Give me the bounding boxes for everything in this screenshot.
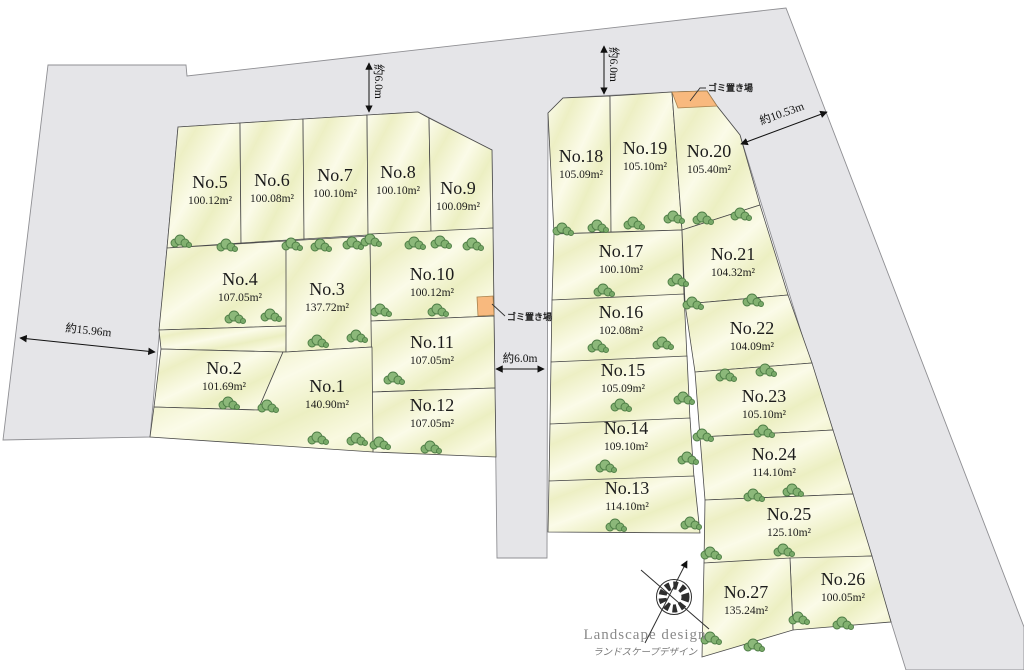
site-plan: ゴミ置き場 ゴミ置き場 No.1 140.90m² No.2 101.69m² … — [0, 0, 1024, 670]
lot-number-20: No.20 — [687, 141, 732, 161]
garbage-label-center: ゴミ置き場 — [507, 311, 552, 322]
garbage-label-north: ゴミ置き場 — [708, 82, 753, 93]
lot-area-26: 100.05m² — [821, 592, 866, 604]
lot-area-1: 140.90m² — [305, 399, 350, 411]
lot-number-1: No.1 — [309, 376, 345, 396]
lot-area-8: 100.10m² — [376, 185, 421, 197]
lot-area-9: 100.09m² — [436, 201, 481, 213]
lot-area-17: 100.10m² — [599, 264, 644, 276]
lot-number-11: No.11 — [410, 332, 454, 352]
lot-area-21: 104.32m² — [711, 267, 756, 279]
branding-en: Landscape design — [583, 627, 706, 643]
lot-area-25: 125.10m² — [767, 527, 812, 539]
lot-number-5: No.5 — [192, 172, 228, 192]
lot-number-25: No.25 — [767, 504, 812, 524]
lot-area-10: 100.12m² — [410, 287, 455, 299]
lot-number-17: No.17 — [599, 241, 644, 261]
lot-area-18: 105.09m² — [559, 169, 604, 181]
lot-area-11: 107.05m² — [410, 355, 455, 367]
lot-number-24: No.24 — [752, 444, 797, 464]
lot-area-24: 114.10m² — [752, 467, 796, 479]
lot-number-23: No.23 — [742, 386, 787, 406]
lot-area-7: 100.10m² — [313, 188, 358, 200]
lot-number-18: No.18 — [559, 146, 604, 166]
lot-number-6: No.6 — [254, 170, 290, 190]
lot-number-26: No.26 — [821, 569, 866, 589]
lot-number-22: No.22 — [730, 318, 775, 338]
lot-number-10: No.10 — [410, 264, 455, 284]
lot-polygon-24 — [700, 430, 853, 500]
lot-number-12: No.12 — [410, 395, 455, 415]
lot-area-14: 109.10m² — [604, 441, 649, 453]
lot-area-3: 137.72m² — [305, 302, 350, 314]
dimension-label-center-road: 約6.0m — [503, 351, 538, 365]
lot-number-9: No.9 — [440, 178, 476, 198]
lot-area-5: 100.12m² — [188, 195, 233, 207]
lot-area-15: 105.09m² — [601, 383, 646, 395]
site-plan-canvas: ゴミ置き場 ゴミ置き場 No.1 140.90m² No.2 101.69m² … — [0, 0, 1024, 670]
branding-ja: ランドスケープデザイン — [593, 646, 697, 658]
lot-area-23: 105.10m² — [742, 409, 787, 421]
lot-area-27: 135.24m² — [724, 605, 769, 617]
lot-area-13: 114.10m² — [605, 501, 649, 513]
lot-number-8: No.8 — [380, 162, 416, 182]
lot-number-3: No.3 — [309, 279, 345, 299]
lot-area-20: 105.40m² — [687, 164, 732, 176]
lot-area-2: 101.69m² — [202, 381, 247, 393]
dimension-label-top-road-right: 約6.0m — [607, 47, 621, 82]
lot-area-4: 107.05m² — [218, 292, 263, 304]
lot-number-15: No.15 — [601, 360, 646, 380]
lot-number-14: No.14 — [604, 418, 649, 438]
lot-number-7: No.7 — [317, 165, 353, 185]
lot-area-12: 107.05m² — [410, 418, 455, 430]
lot-number-16: No.16 — [599, 302, 644, 322]
lot-number-4: No.4 — [222, 269, 258, 289]
lot-area-16: 102.08m² — [599, 325, 644, 337]
lot-number-27: No.27 — [724, 582, 769, 602]
lot-number-2: No.2 — [206, 358, 242, 378]
garbage-area-center — [477, 296, 494, 316]
lot-area-22: 104.09m² — [730, 341, 775, 353]
dimension-label-top-road-left: 約6.0m — [372, 64, 386, 99]
lot-area-19: 105.10m² — [623, 161, 668, 173]
lot-area-6: 100.08m² — [250, 193, 295, 205]
lot-number-19: No.19 — [623, 138, 668, 158]
lot-number-13: No.13 — [605, 478, 650, 498]
lot-strip — [159, 326, 287, 352]
lot-number-21: No.21 — [711, 244, 756, 264]
